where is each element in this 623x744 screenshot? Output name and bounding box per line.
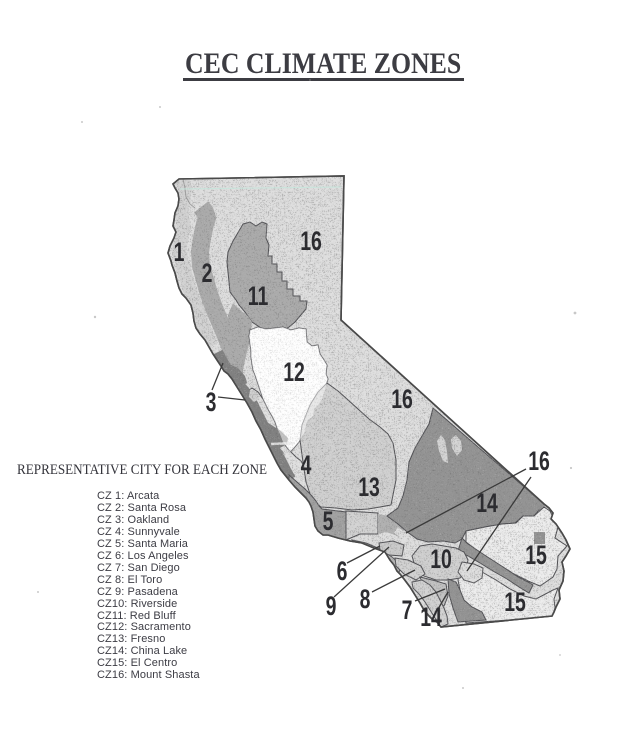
svg-text:3: 3 [206,387,217,417]
svg-text:6: 6 [337,556,348,586]
svg-text:15: 15 [525,540,547,570]
svg-text:16: 16 [528,446,550,476]
svg-text:14: 14 [476,488,498,518]
svg-text:16: 16 [391,384,413,414]
svg-text:5: 5 [323,506,334,536]
svg-text:8: 8 [360,584,371,614]
svg-text:9: 9 [326,591,337,621]
svg-text:7: 7 [402,595,413,625]
svg-text:16: 16 [300,226,322,256]
svg-text:11: 11 [248,281,269,311]
svg-text:4: 4 [301,450,312,480]
svg-text:2: 2 [202,258,213,288]
svg-text:1: 1 [174,237,185,267]
svg-text:10: 10 [430,544,452,574]
svg-text:14: 14 [420,602,442,632]
svg-text:15: 15 [504,587,526,617]
svg-text:12: 12 [283,357,305,387]
svg-text:13: 13 [358,472,380,502]
